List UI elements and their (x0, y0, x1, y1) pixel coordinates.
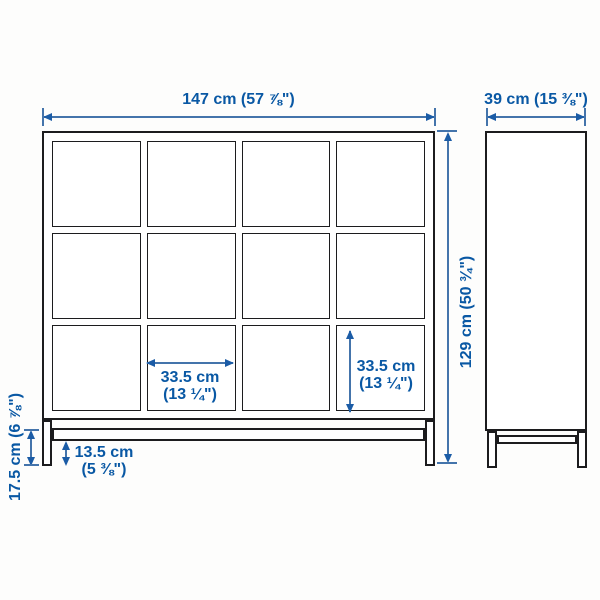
front-right-leg (425, 420, 435, 466)
shelf-cell (336, 141, 425, 227)
shelf-cell (242, 141, 331, 227)
dim-cell-height-line1: 33.5 cm (354, 358, 418, 375)
dim-base-height-label: 17.5 cm (6 ⅞") (7, 393, 25, 501)
dim-line (488, 116, 584, 118)
dim-cell-height-line2: (13 ¼") (354, 375, 418, 392)
dim-line (447, 134, 449, 460)
shelf-cell (52, 233, 141, 319)
arrowhead-right (225, 359, 234, 367)
arrowhead-down (62, 457, 70, 466)
side-panel (485, 131, 587, 431)
front-underframe-rail (52, 428, 425, 441)
shelf-cell (242, 233, 331, 319)
arrowhead-up (346, 330, 354, 339)
arrowhead-up (27, 430, 35, 439)
dim-cell-width-label: 33.5 cm (13 ¼") (143, 369, 237, 403)
dim-overall-height-label: 129 cm (50 ¾") (458, 256, 476, 369)
shelf-cell (336, 233, 425, 319)
shelf-cell (242, 325, 331, 411)
dim-tick (42, 108, 44, 126)
shelf-cell (147, 233, 236, 319)
arrowhead-down (346, 404, 354, 413)
dim-cell-width-line1: 33.5 cm (143, 369, 237, 386)
dim-tick (24, 429, 39, 431)
arrowhead-left (487, 113, 496, 121)
side-right-leg (577, 431, 587, 468)
dim-base-clearance-line1: 13.5 cm (72, 444, 136, 461)
shelf-cell (147, 141, 236, 227)
dim-tick (437, 462, 457, 464)
side-left-leg (487, 431, 497, 468)
arrowhead-left (43, 113, 52, 121)
dim-tick (434, 108, 436, 126)
arrowhead-left (146, 359, 155, 367)
arrowhead-up (444, 132, 452, 141)
dim-line (147, 362, 233, 364)
dim-cell-width-line2: (13 ¼") (143, 386, 237, 403)
arrowhead-up (62, 441, 70, 450)
dim-line (349, 331, 351, 412)
dimension-diagram: 147 cm (57 ⅞") 39 cm (15 ⅜") 129 cm (50 … (0, 0, 600, 600)
dim-cell-height-label: 33.5 cm (13 ¼") (354, 358, 418, 392)
front-left-leg (42, 420, 52, 466)
shelf-cell (52, 325, 141, 411)
dim-base-clearance-line2: (5 ⅜") (72, 461, 136, 478)
dim-tick (486, 108, 488, 126)
side-underframe-rail (497, 435, 577, 444)
dim-depth-label: 39 cm (15 ⅜") (480, 91, 592, 108)
dim-tick (584, 108, 586, 126)
dim-line (44, 116, 434, 118)
dim-overall-width-label: 147 cm (57 ⅞") (42, 91, 435, 108)
shelf-cell (52, 141, 141, 227)
dim-base-clearance-label: 13.5 cm (5 ⅜") (72, 444, 136, 478)
dim-tick (437, 130, 457, 132)
dim-tick (24, 464, 39, 466)
